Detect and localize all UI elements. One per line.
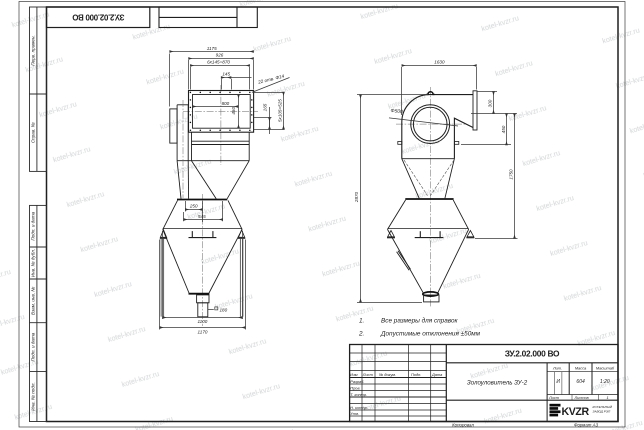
- svg-text:№ докум.: № докум.: [379, 372, 396, 377]
- svg-text:926: 926: [216, 53, 224, 58]
- svg-text:2.: 2.: [358, 331, 364, 338]
- svg-text:1175: 1175: [207, 46, 217, 51]
- svg-text:1: 1: [607, 395, 609, 400]
- svg-text:1630: 1630: [434, 59, 445, 64]
- svg-text:604: 604: [576, 379, 585, 385]
- svg-text:1.: 1.: [359, 318, 364, 325]
- svg-text:Справ. №: Справ. №: [31, 122, 36, 143]
- svg-text:5х105=525: 5х105=525: [277, 99, 282, 122]
- svg-text:Взам. инв. №: Взам. инв. №: [31, 287, 36, 315]
- svg-text:180: 180: [220, 308, 228, 313]
- svg-text:Пров.: Пров.: [350, 385, 360, 390]
- svg-text:Лист: Лист: [362, 372, 374, 377]
- svg-text:Подп. и дата: Подп. и дата: [31, 332, 36, 361]
- svg-text:1100: 1100: [197, 319, 207, 324]
- svg-text:Н. контр.: Н. контр.: [350, 405, 368, 410]
- svg-text:450: 450: [231, 107, 236, 115]
- svg-text:ЗАВОД РЭП: ЗАВОД РЭП: [593, 410, 612, 414]
- svg-text:Формат А3: Формат А3: [574, 423, 599, 428]
- svg-text:1750: 1750: [509, 169, 514, 180]
- svg-text:300: 300: [488, 99, 493, 107]
- svg-text:250: 250: [189, 203, 198, 208]
- svg-text:545: 545: [198, 214, 206, 219]
- svg-text:Масса: Масса: [575, 366, 587, 371]
- svg-text:800: 800: [222, 101, 230, 106]
- svg-text:KVZR: KVZR: [562, 406, 590, 418]
- svg-text:Подп. и дата: Подп. и дата: [31, 211, 36, 240]
- svg-text:Разраб.: Разраб.: [350, 379, 364, 384]
- svg-text:Утв.: Утв.: [350, 411, 359, 416]
- svg-text:1:20: 1:20: [600, 379, 610, 385]
- svg-text:Лист: Лист: [548, 395, 560, 400]
- svg-text:6х145=870: 6х145=870: [207, 60, 230, 65]
- svg-text:450: 450: [501, 125, 506, 133]
- svg-text:Золоуловитель ЗУ-2: Золоуловитель ЗУ-2: [467, 380, 528, 387]
- svg-text:Копировал: Копировал: [452, 423, 474, 428]
- svg-text:Изм: Изм: [350, 372, 358, 377]
- svg-text:Лит.: Лит.: [552, 366, 562, 371]
- svg-text:ЗУ.2.02.000 ВО: ЗУ.2.02.000 ВО: [72, 12, 124, 21]
- svg-text:Инв. № подл.: Инв. № подл.: [31, 382, 36, 411]
- svg-text:Допустимые отклонения ±50мм: Допустимые отклонения ±50мм: [380, 331, 481, 338]
- svg-text:1170: 1170: [198, 329, 208, 334]
- svg-text:Все размеры для справок: Все размеры для справок: [381, 317, 459, 325]
- svg-text:КОТЕЛЬНЫЙ: КОТЕЛЬНЫЙ: [593, 405, 613, 409]
- svg-text:Подп.: Подп.: [411, 372, 421, 377]
- svg-text:И: И: [556, 379, 560, 385]
- svg-text:Масштаб: Масштаб: [596, 366, 615, 371]
- svg-text:2870: 2870: [354, 191, 359, 203]
- svg-text:Т. контр.: Т. контр.: [350, 392, 367, 397]
- svg-text:Инв. № дубл.: Инв. № дубл.: [31, 249, 36, 277]
- svg-text:Дата: Дата: [431, 372, 443, 377]
- svg-text:Листов: Листов: [574, 395, 589, 400]
- svg-text:Перв. примен.: Перв. примен.: [31, 35, 36, 66]
- svg-text:165: 165: [262, 103, 267, 111]
- svg-text:ЗУ.2.02.000 ВО: ЗУ.2.02.000 ВО: [505, 349, 560, 359]
- svg-text:145: 145: [222, 72, 230, 77]
